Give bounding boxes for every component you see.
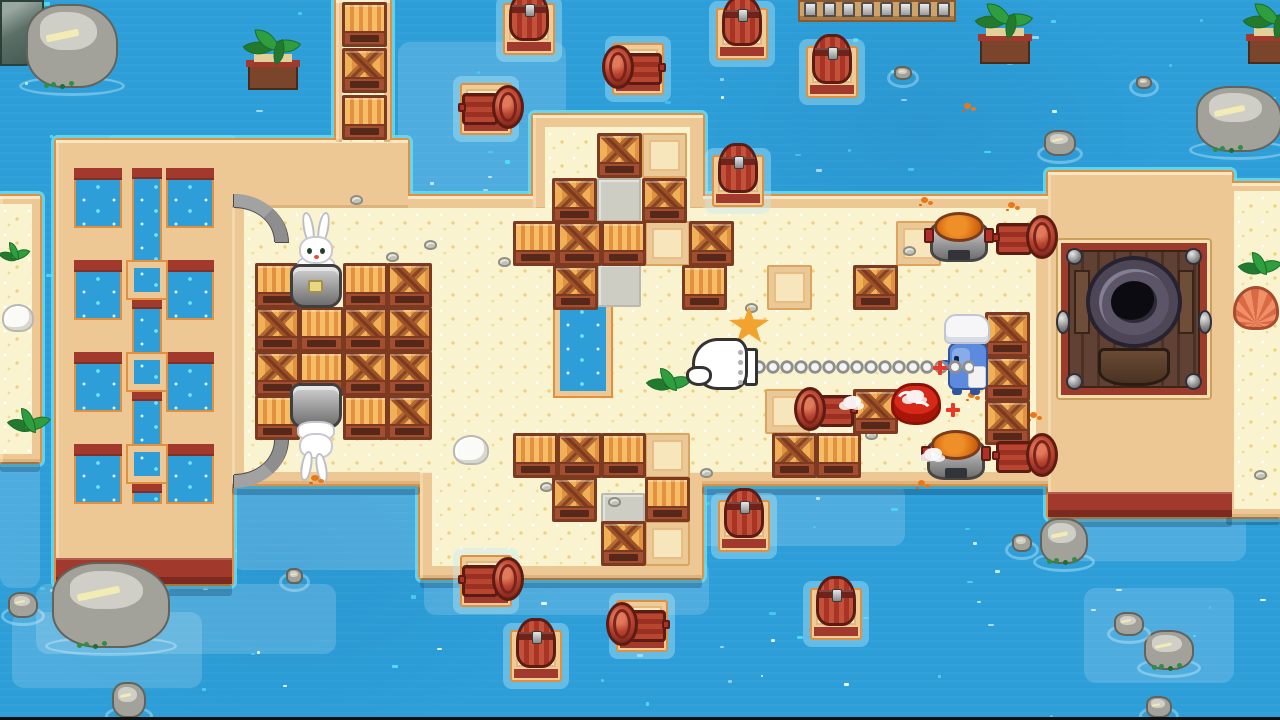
water-sparkle (761, 675, 763, 677)
pier-channel-wall (132, 168, 162, 179)
crate-cross (853, 265, 898, 310)
barrel-lying-right (990, 433, 1056, 479)
rock-med (1040, 518, 1088, 564)
water-sparkle (908, 168, 914, 171)
pebble (498, 257, 511, 267)
pebble (608, 497, 621, 507)
crate-base (302, 338, 341, 349)
rock-grass (1220, 146, 1225, 151)
water-sparkle (988, 624, 995, 626)
crate-planks (819, 436, 858, 464)
palm-planter (1246, 2, 1280, 66)
crate-planks (345, 51, 384, 79)
dock-post (918, 2, 931, 17)
crate-cross (387, 263, 432, 308)
pebble (745, 303, 758, 313)
barrel-standing (718, 143, 758, 193)
rock-grass (84, 642, 89, 647)
crate-base (560, 252, 599, 263)
crate-planks (346, 398, 385, 426)
stone-tile (597, 263, 641, 307)
boxing-glove (686, 336, 760, 398)
rock-grass (1159, 664, 1164, 669)
palm-sprout (650, 368, 690, 406)
crate-planks (345, 5, 384, 33)
water-sparkle (1051, 20, 1056, 23)
crate-cross (642, 178, 687, 223)
water-sparkle (1032, 36, 1038, 39)
crate-base (346, 338, 385, 349)
crate-planks (560, 224, 599, 252)
cannon-bracket-left (1056, 310, 1070, 334)
crate-planks (555, 480, 594, 508)
barrel-tap (458, 575, 466, 584)
bucket-label (308, 280, 323, 293)
water-sparkle (995, 570, 1001, 573)
rock-tiny (286, 568, 303, 584)
rabbit-eye (320, 248, 325, 254)
shore-shadow (1226, 517, 1280, 525)
dock-post (823, 2, 836, 17)
rock-grass (1054, 558, 1059, 563)
dock-post (804, 2, 817, 17)
pebble (386, 252, 399, 262)
cannon-bracket-right (1198, 310, 1212, 334)
crate-cross (342, 48, 387, 93)
crate-slats (343, 395, 388, 440)
water-sparkle (601, 679, 604, 682)
crate-planks (556, 268, 595, 296)
crate-planks (516, 224, 555, 252)
water-sparkle (505, 160, 510, 163)
pot-handle-right (984, 228, 994, 243)
pot-vent (948, 250, 970, 260)
water-sparkle (1052, 110, 1057, 112)
rock-big (1196, 86, 1280, 152)
pier-node-water (134, 360, 160, 384)
crate-cross (343, 351, 388, 396)
rock-med (1144, 630, 1194, 670)
rabbit-head (299, 236, 333, 264)
pebble (700, 468, 713, 478)
dock-post (842, 2, 855, 17)
barrel-tap (662, 620, 670, 629)
chef-hat (944, 314, 990, 344)
game-viewport[interactable] (0, 0, 1280, 720)
water-sparkle (256, 110, 263, 112)
water-sparkle (816, 169, 822, 171)
water-sparkle (1091, 609, 1096, 611)
water-sparkle (721, 96, 724, 99)
pier-hole-wall (74, 168, 122, 180)
crate-base (648, 508, 687, 519)
water-sparkle (257, 651, 260, 654)
water-sparkle (637, 654, 643, 657)
pot-handle-right (981, 446, 991, 461)
barrel-standing (724, 488, 764, 538)
crate-base (819, 464, 858, 475)
water-sparkle (392, 665, 398, 668)
crate-cross (689, 221, 734, 266)
crate-planks (604, 436, 643, 464)
crate-base (258, 338, 297, 349)
water-sparkle (967, 581, 973, 584)
crate-planks (302, 310, 341, 338)
water-sparkle (646, 702, 649, 705)
stone-tile (597, 178, 641, 222)
crate-base (645, 209, 684, 220)
crate-planks (600, 136, 639, 164)
empty-pallet-tile (645, 521, 690, 566)
crate-planks (988, 403, 1027, 431)
cannon-bolt (1185, 248, 1202, 265)
rabbit-nose (314, 255, 319, 259)
crate-slats (513, 433, 558, 478)
empty-pallet-tile (642, 133, 687, 178)
crate-planks (775, 436, 814, 464)
chef-foot (952, 388, 962, 395)
rock-small (1146, 696, 1172, 718)
rabbit-character (289, 383, 343, 483)
crate-planks (555, 181, 594, 209)
rock-small (8, 592, 38, 618)
crate-base (604, 252, 643, 263)
cooking-pot (928, 212, 990, 264)
rabbit-character (289, 212, 343, 312)
dock-post (861, 2, 874, 17)
water-sparkle (720, 78, 723, 81)
water-sparkle (973, 542, 976, 544)
rock-big (52, 562, 170, 648)
shallow-water-patch (0, 458, 40, 588)
barrel-tap (458, 103, 466, 112)
glove-thumb (686, 366, 712, 386)
rock-small (1044, 130, 1076, 156)
water-sparkle (298, 12, 302, 15)
rock-grass (51, 82, 56, 87)
barrel-face (492, 85, 524, 129)
water-sparkle (488, 151, 494, 153)
water-sparkle (965, 528, 971, 530)
crate-planks (604, 224, 643, 252)
water-sparkle (411, 595, 416, 598)
pier-node-water (134, 452, 160, 476)
cannon-bolt (1066, 373, 1083, 390)
empty-pallet-tile (645, 221, 690, 266)
crate-planks (645, 181, 684, 209)
pier-hole-wall (74, 260, 122, 272)
water-sparkle (488, 176, 492, 178)
crate-planks (648, 480, 687, 508)
rock-small (1114, 612, 1144, 636)
barrel-face (602, 45, 634, 89)
water-sparkle (437, 648, 442, 650)
pebble (350, 195, 363, 205)
palm-planter (246, 28, 300, 92)
white-shell (453, 435, 489, 465)
pier-channel-wall (132, 484, 162, 493)
pier-channel-wall (132, 392, 162, 401)
crate-cross (772, 433, 817, 478)
crate-slats (682, 265, 727, 310)
rabbit-eye (307, 248, 312, 254)
water-sparkle (795, 154, 802, 156)
empty-pallet-tile (767, 265, 812, 310)
palm-sprout (12, 408, 48, 450)
crate-cross (387, 307, 432, 352)
crate-planks (390, 310, 429, 338)
shore-shadow (232, 486, 420, 495)
stew-splash (1008, 202, 1015, 208)
rock-tiny (1012, 534, 1032, 552)
barrel-tap (992, 451, 1000, 460)
palm-sprout (1242, 252, 1280, 290)
barrel-face (492, 557, 524, 601)
pier-hole-wall (166, 260, 214, 272)
crate-base (555, 209, 594, 220)
water-sparkle (863, 617, 869, 620)
stew-splash (1030, 412, 1037, 418)
barrel-standing (516, 618, 556, 668)
barrel-standing (812, 34, 852, 84)
barrel-face (794, 387, 826, 431)
crate-planks (560, 436, 599, 464)
barrel-face (1026, 433, 1058, 477)
barrel-lying-right (456, 557, 522, 603)
crate-slats (601, 221, 646, 266)
crate-cross (552, 178, 597, 223)
cannon-bolt (1066, 248, 1083, 265)
barrel-standing (722, 0, 762, 46)
shore-shadow (0, 462, 40, 472)
crate-planks (390, 398, 429, 426)
crate-planks (302, 354, 341, 382)
crate-base (346, 294, 385, 305)
pier-hole-wall (166, 168, 214, 180)
scallop-shell (1233, 286, 1279, 330)
water-sparkle (665, 101, 671, 104)
empty-pallet-tile (645, 433, 690, 478)
rock-tiny (894, 66, 912, 80)
pebble (424, 240, 437, 250)
glove-lace-dots (738, 350, 743, 355)
barrel-face (606, 602, 638, 646)
rock-big (26, 4, 118, 88)
crate-planks (346, 354, 385, 382)
barrel-lying-left (796, 387, 862, 433)
crate-slats (601, 433, 646, 478)
crate-base (600, 164, 639, 175)
stew-splash (964, 103, 971, 109)
crate-cross (387, 351, 432, 396)
pebble (903, 246, 916, 256)
crate-base (346, 382, 385, 393)
barrel-face (1026, 215, 1058, 259)
crate-planks (856, 268, 895, 296)
crate-base (604, 464, 643, 475)
water-sparkle (769, 612, 775, 615)
crate-base (390, 338, 429, 349)
palm-planter (978, 2, 1032, 66)
crate-slats (342, 95, 387, 140)
crate-base (516, 464, 555, 475)
crate-planks (258, 354, 297, 382)
crab-character (889, 379, 943, 429)
right-path-sand (1234, 191, 1280, 509)
cannon-bolt (1185, 373, 1202, 390)
water-sparkle (938, 675, 941, 678)
crate-base (346, 426, 385, 437)
crate-planks (604, 524, 643, 552)
crate-cross (552, 477, 597, 522)
crate-cross (597, 133, 642, 178)
water-sparkle (984, 151, 990, 154)
barrel-lying-right (456, 85, 522, 131)
crate-planks (516, 436, 555, 464)
stew-splash (918, 480, 925, 486)
pier-hole-wall (74, 444, 122, 456)
water-sparkle (202, 688, 205, 691)
hit-spark (933, 366, 947, 370)
crate-cross (343, 307, 388, 352)
stew-splash (921, 197, 928, 203)
dropped-food (311, 475, 319, 481)
crate-base (685, 296, 724, 307)
water-sparkle (891, 508, 898, 511)
cannon-muzzle (1086, 256, 1182, 348)
crate-planks (685, 268, 724, 296)
crate-base (555, 508, 594, 519)
water-sparkle (1116, 589, 1122, 592)
water-sparkle (477, 71, 480, 74)
water-sparkle (771, 639, 775, 641)
water-sparkle (40, 587, 45, 590)
pier-channel-wall (132, 300, 162, 309)
crate-base (856, 296, 895, 307)
crate-base (692, 252, 731, 263)
pot-stew (934, 212, 984, 242)
rock-small (112, 682, 146, 718)
crate-base (604, 552, 643, 563)
palm-sprout (2, 242, 28, 272)
crate-base (390, 426, 429, 437)
crate-base (345, 79, 384, 90)
water-sparkle (844, 683, 849, 686)
barrel-lying-left (608, 602, 674, 648)
crate-cross (255, 307, 300, 352)
crate-cross (557, 221, 602, 266)
crate-slats (299, 307, 344, 352)
crate-cross (601, 521, 646, 566)
crate-base (560, 464, 599, 475)
water-sparkle (430, 182, 435, 185)
barrel-lying-right (990, 215, 1056, 261)
crate-cross (387, 395, 432, 440)
dock-post (899, 2, 912, 17)
dock-post (880, 2, 893, 17)
white-shell (2, 304, 34, 332)
water-sparkle (797, 636, 803, 639)
crate-planks (258, 310, 297, 338)
water-sparkle (848, 149, 851, 152)
crate-planks (346, 310, 385, 338)
crate-base (556, 296, 595, 307)
water-sparkle (1169, 64, 1172, 67)
pier-node-water (134, 268, 160, 292)
pot-vent (945, 468, 967, 478)
platform-base (1048, 492, 1232, 517)
crate-base (516, 252, 555, 263)
water-sparkle (816, 497, 819, 500)
crate-planks (345, 98, 384, 126)
chef-foot (970, 388, 980, 395)
pier-hole-wall (74, 352, 122, 364)
crate-base (390, 382, 429, 393)
top-dock (798, 0, 956, 22)
crate-base (390, 294, 429, 305)
barrel-standing (509, 0, 549, 41)
pebble (1254, 470, 1267, 480)
crate-slats (342, 2, 387, 47)
dock-post (937, 2, 950, 17)
crate-base (775, 464, 814, 475)
crate-base (345, 33, 384, 44)
cannon-base (1098, 348, 1170, 386)
barrel-lying-left (604, 45, 670, 91)
water-sparkle (853, 38, 858, 41)
crate-cross (553, 265, 598, 310)
pier-hole-wall (166, 444, 214, 456)
crate-planks (390, 354, 429, 382)
crate-base (345, 126, 384, 137)
crate-slats (343, 263, 388, 308)
crate-planks (346, 266, 385, 294)
crate-cross (557, 433, 602, 478)
barrel-standing (816, 576, 856, 626)
crate-slats (645, 477, 690, 522)
hit-spark (946, 408, 960, 412)
water-sparkle (728, 680, 733, 683)
pot-handle-left (924, 228, 934, 243)
pier-hole-wall (166, 352, 214, 364)
crate-planks (390, 266, 429, 294)
barrel-tap (658, 63, 666, 72)
crate-planks (692, 224, 731, 252)
crate-slats (513, 221, 558, 266)
rock-tiny (1136, 76, 1152, 89)
crate-slats (816, 433, 861, 478)
